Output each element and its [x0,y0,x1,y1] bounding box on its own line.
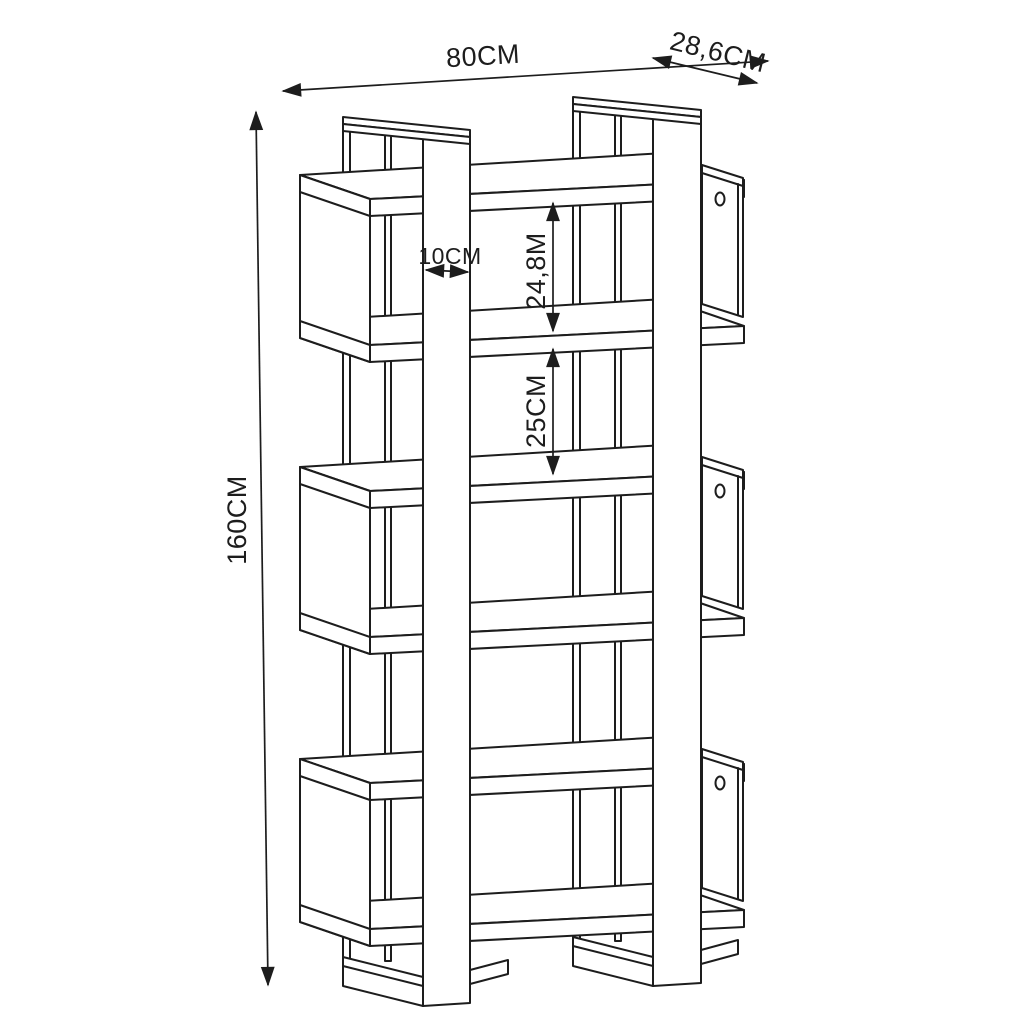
mounting-hole-icon [716,777,725,790]
dimension-top-gap-label: 24,8M [521,232,551,310]
dimension-column-width: 10CM [418,243,481,272]
dimension-depth: 28,6CM [653,26,769,83]
dimension-depth-label: 28,6CM [667,26,769,79]
right-side-box-middle [702,457,743,609]
dimension-column-width-label: 10CM [418,243,481,269]
left-side-box-middle [300,467,370,654]
mounting-hole-icon [716,193,725,206]
right-side-box-top [702,165,743,317]
left-side-box-bottom [300,759,370,946]
left-side-box-top [300,175,370,362]
right-side-box-bottom [702,749,743,901]
dimension-shelf-gap-label: 25CM [521,374,551,448]
dimension-width-label: 80CM [445,39,521,73]
mounting-hole-icon [716,485,725,498]
dimension-height-label: 160CM [222,475,252,565]
right-frame-back-post [573,100,621,943]
technical-drawing-canvas: 80CM 28,6CM 160CM 10CM 24,8M 25CM [0,0,1024,1024]
dimension-height: 160CM [222,112,268,985]
bookcase-dimension-diagram: 80CM 28,6CM 160CM 10CM 24,8M 25CM [0,0,1024,1024]
